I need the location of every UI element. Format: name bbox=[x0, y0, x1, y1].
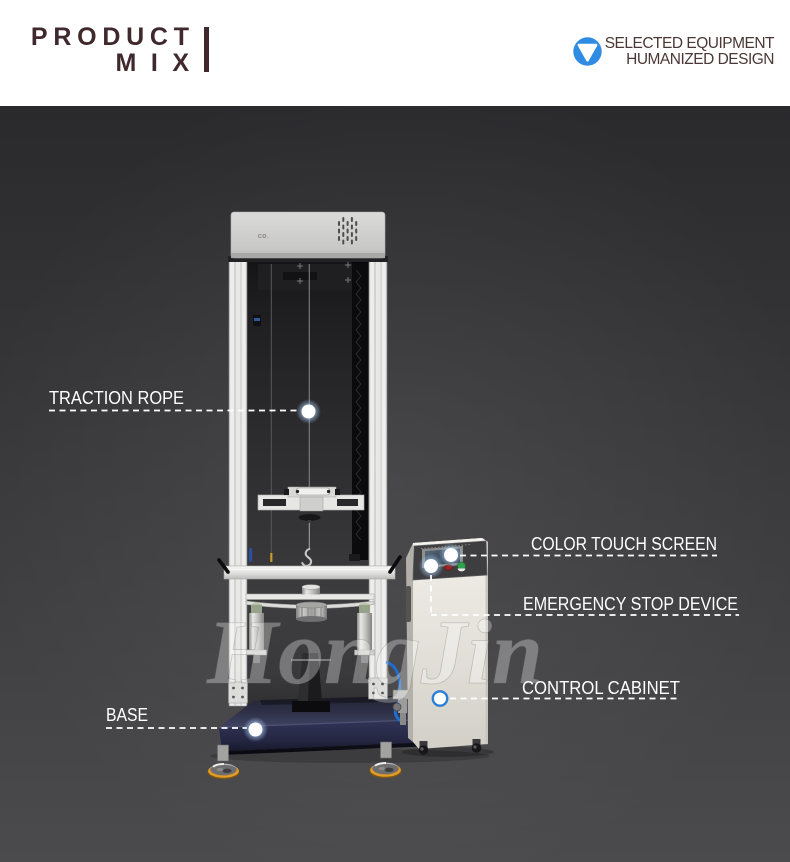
svg-text:co.: co. bbox=[258, 231, 270, 240]
svg-text:TRACTION ROPE: TRACTION ROPE bbox=[49, 388, 184, 408]
svg-text:CONTROL CABINET: CONTROL CABINET bbox=[522, 678, 680, 698]
svg-text:BASE: BASE bbox=[106, 705, 148, 725]
svg-text:EMERGENCY STOP DEVICE: EMERGENCY STOP DEVICE bbox=[523, 594, 738, 614]
svg-text:HongJin: HongJin bbox=[206, 601, 543, 703]
svg-text:COLOR TOUCH SCREEN: COLOR TOUCH SCREEN bbox=[531, 534, 717, 554]
